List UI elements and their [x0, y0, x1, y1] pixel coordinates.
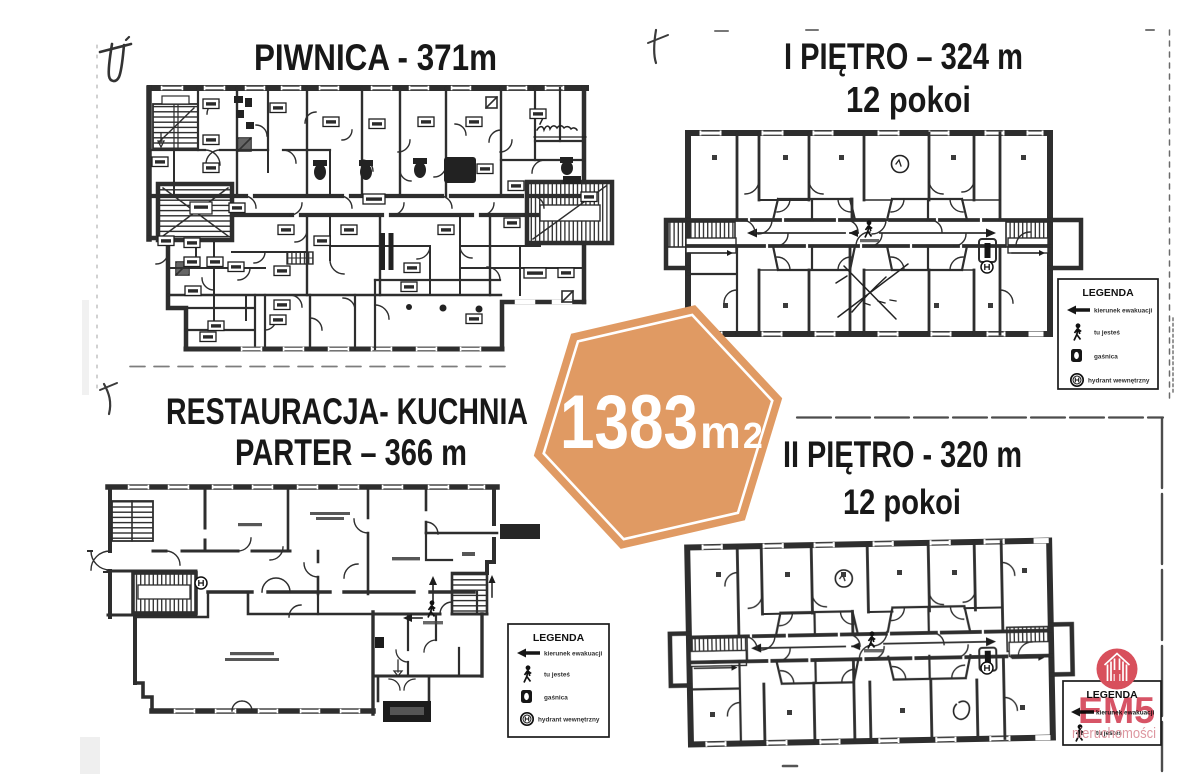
svg-text:kierunek ewakuacji: kierunek ewakuacji	[544, 651, 602, 658]
svg-text:nieruchomości: nieruchomości	[1072, 726, 1156, 742]
svg-text:tu jesteś: tu jesteś	[544, 672, 570, 679]
svg-text:LEGENDA: LEGENDA	[1082, 287, 1134, 299]
svg-text:II PIĘTRO - 320 m: II PIĘTRO - 320 m	[783, 434, 1022, 475]
svg-text:EM5: EM5	[1078, 690, 1155, 731]
svg-text:gaśnica: gaśnica	[1094, 354, 1118, 361]
svg-text:12 pokoi: 12 pokoi	[843, 483, 961, 522]
svg-text:PIWNICA - 371m: PIWNICA - 371m	[254, 37, 497, 78]
svg-text:I PIĘTRO – 324 m: I PIĘTRO – 324 m	[784, 36, 1023, 77]
svg-text:LEGENDA: LEGENDA	[533, 632, 585, 644]
svg-text:kierunek ewakuacji: kierunek ewakuacji	[1094, 308, 1152, 315]
svg-text:gaśnica: gaśnica	[544, 695, 568, 702]
svg-text:RESTAURACJA- KUCHNIA: RESTAURACJA- KUCHNIA	[166, 391, 528, 432]
svg-text:1383: 1383	[560, 380, 698, 465]
svg-text:hydrant wewnętrzny: hydrant wewnętrzny	[538, 717, 600, 724]
svg-text:PARTER – 366 m: PARTER – 366 m	[235, 432, 467, 473]
svg-text:tu jesteś: tu jesteś	[1094, 330, 1120, 337]
svg-text:12 pokoi: 12 pokoi	[846, 79, 971, 120]
svg-text:hydrant wewnętrzny: hydrant wewnętrzny	[1088, 378, 1150, 385]
